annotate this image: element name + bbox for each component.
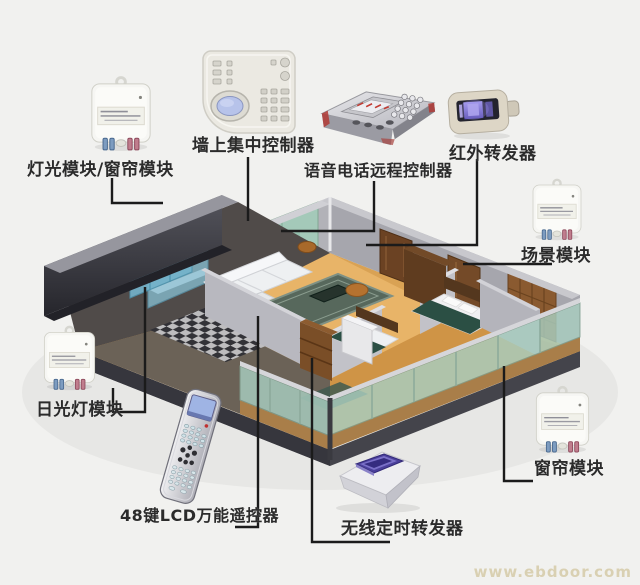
ir-repeater-device [444,84,524,142]
label-remote-48key: 48键LCD万能遥控器 [120,502,279,526]
label-wireless-timer: 无线定时转发器 [341,514,464,539]
curtain-module-device [532,384,593,454]
label-light-curtain-module: 灯光模块/窗帘模块 [27,155,174,180]
plug-module-icon [87,74,155,152]
voice-phone-controller-device [312,84,440,156]
telephone-remote-icon [312,84,440,156]
label-curtain-module: 窗帘模块 [534,454,604,479]
ir-repeater-icon [444,84,524,142]
timer-repeater-icon [326,442,432,516]
label-fluorescent-module: 日光灯模块 [36,395,124,420]
scene-module-device [529,177,585,241]
plug-module-icon [529,177,585,241]
plug-module-icon [532,384,593,454]
watermark: www.ebdoor.com [474,563,632,581]
light-curtain-module-device [87,74,155,152]
label-wall-controller: 墙上集中控制器 [192,131,315,156]
label-ir-repeater: 红外转发器 [449,139,537,164]
label-scene-module: 场景模块 [521,241,591,266]
label-voice-phone-controller: 语音电话远程控制器 [304,157,453,181]
smart-home-diagram: 灯光模块/窗帘模块 墙上集中控制器 语音电话远程控制器 红外转发器 场景模块 日… [0,0,640,585]
wall-panel-icon [199,48,299,136]
wall-controller-device [199,48,299,136]
fluorescent-module-device [40,324,99,391]
wireless-timer-device [326,442,432,516]
plug-module-icon [40,324,99,391]
